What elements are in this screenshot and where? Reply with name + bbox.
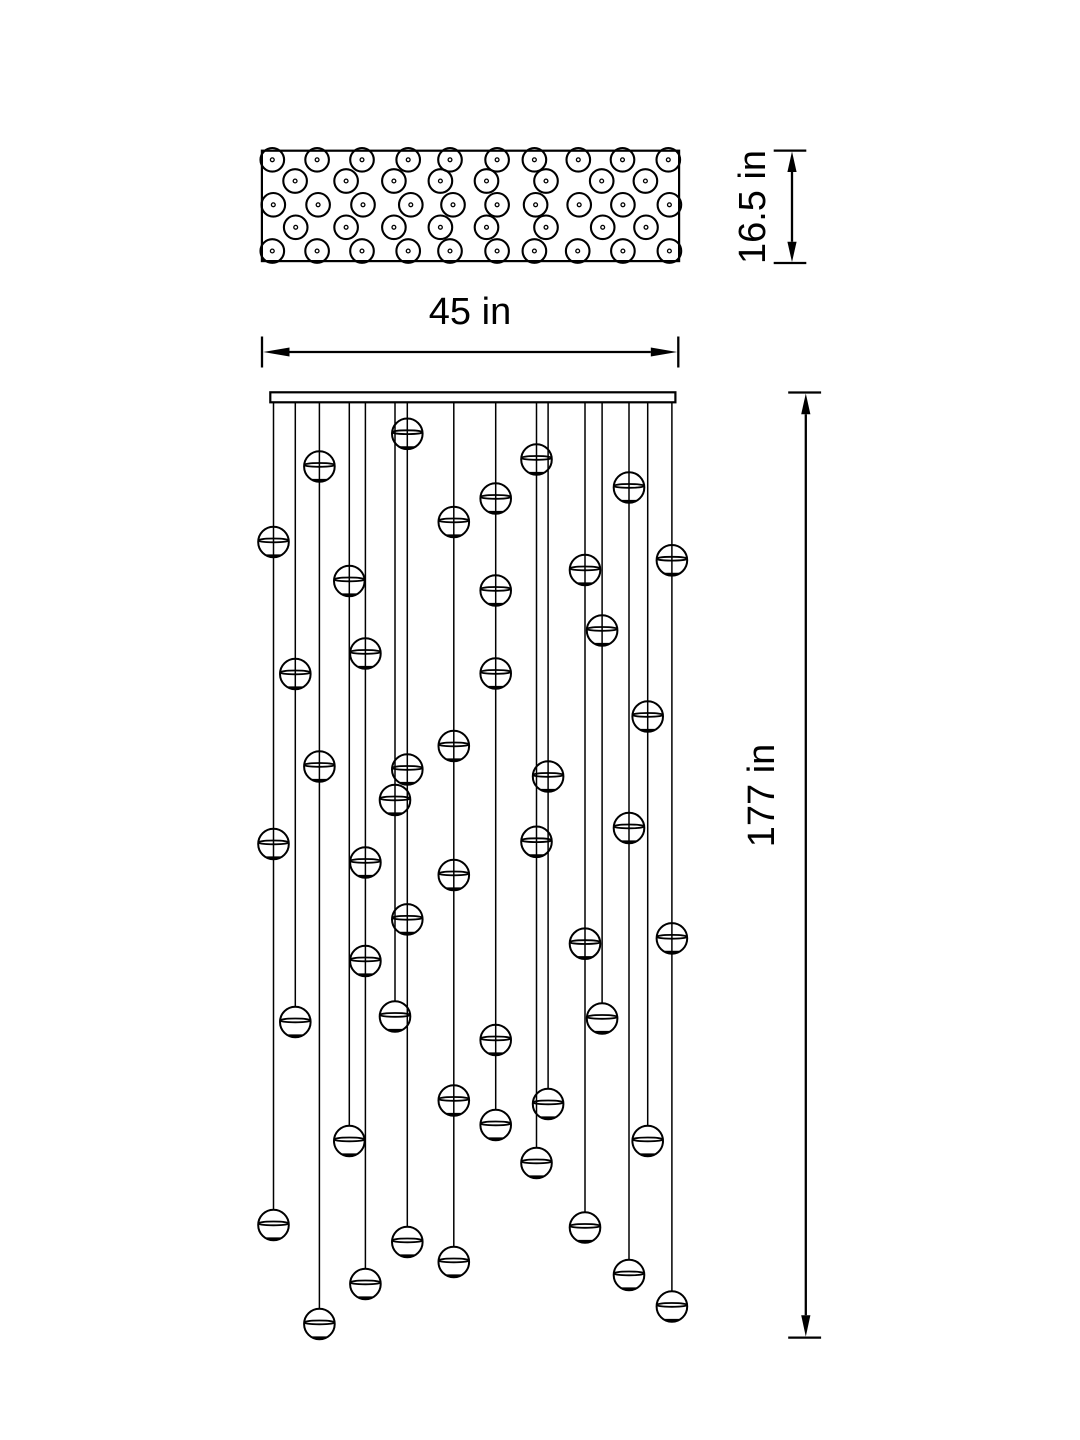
svg-text:45 in: 45 in bbox=[429, 291, 511, 333]
svg-text:16.5 in: 16.5 in bbox=[732, 150, 774, 264]
svg-text:177 in: 177 in bbox=[741, 744, 783, 848]
